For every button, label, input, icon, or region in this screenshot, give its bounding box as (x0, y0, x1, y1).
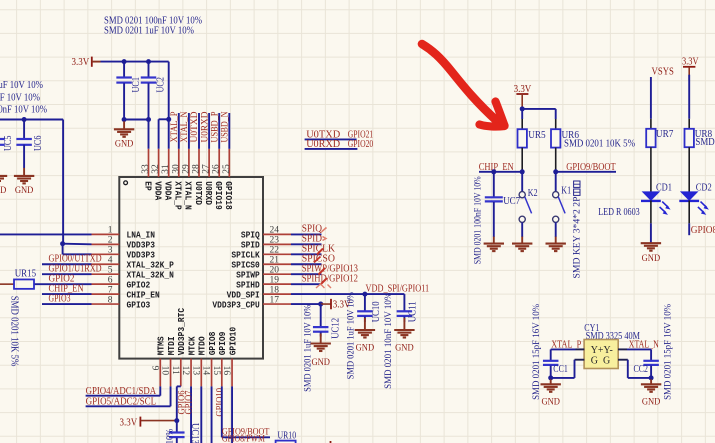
svg-text:23: 23 (270, 236, 280, 246)
svg-text:GPIO8/PWM: GPIO8/PWM (222, 433, 265, 443)
svg-text:SMD 0201 1uF 10V 10%: SMD 0201 1uF 10V 10% (104, 26, 194, 37)
svg-text:SPICS0: SPICS0 (231, 260, 259, 270)
svg-text:VDD3P3: VDD3P3 (127, 241, 155, 251)
svg-text:5: 5 (108, 265, 113, 275)
svg-text:SPIHD/GPIO12: SPIHD/GPIO12 (302, 273, 358, 284)
svg-text:30: 30 (171, 164, 181, 174)
svg-text:GPIO8: GPIO8 (691, 225, 715, 236)
svg-text:3.3V: 3.3V (333, 299, 351, 310)
svg-text:21: 21 (270, 255, 280, 265)
svg-text:VDD_SPI/GPIO11: VDD_SPI/GPIO11 (366, 283, 430, 294)
svg-text:GPIO5/ADC2/SCL: GPIO5/ADC2/SCL (86, 397, 157, 408)
svg-text:SMD 0201 10K 5%: SMD 0201 10K 5% (564, 138, 635, 149)
svg-text:MTDO: MTDO (198, 336, 208, 355)
svg-text:3: 3 (108, 246, 113, 256)
svg-text:4: 4 (108, 255, 113, 265)
svg-text:VDD_SPI: VDD_SPI (227, 290, 260, 300)
svg-text:11: 11 (170, 366, 180, 375)
svg-text:CHIP_EN: CHIP_EN (127, 290, 160, 300)
svg-text:7: 7 (108, 285, 113, 295)
svg-text:SPIQ: SPIQ (241, 231, 261, 241)
svg-text:VDD3P3_CPU: VDD3P3_CPU (212, 300, 259, 310)
svg-text:SPIHD: SPIHD (236, 280, 260, 290)
svg-text:UR7: UR7 (656, 129, 674, 140)
svg-text:26: 26 (212, 164, 222, 174)
svg-text:29: 29 (181, 164, 191, 174)
svg-text:UC1: UC1 (131, 77, 142, 93)
svg-text:SMD 0201 15pF 16V 10%: SMD 0201 15pF 16V 10% (664, 304, 674, 400)
svg-text:32: 32 (151, 164, 161, 174)
svg-text:18: 18 (270, 285, 280, 295)
svg-text:UC7: UC7 (503, 196, 520, 207)
svg-text:19: 19 (270, 275, 280, 285)
svg-text:XTAL_32K_P: XTAL_32K_P (127, 260, 174, 270)
svg-text:GPIO10: GPIO10 (228, 327, 238, 355)
svg-text:G G: G G (591, 356, 611, 367)
svg-text:XTAL_P: XTAL_P (173, 181, 183, 209)
svg-text:15: 15 (211, 366, 221, 376)
svg-text:LNA_IN: LNA_IN (127, 231, 155, 241)
svg-text:SMD 0201 100nF 10V 10%: SMD 0201 100nF 10V 10% (0, 105, 47, 116)
svg-text:24: 24 (270, 226, 280, 236)
svg-text:3.3V: 3.3V (682, 57, 699, 68)
svg-text:GPIO18: GPIO18 (223, 181, 233, 209)
svg-text:SMD 0201 1uF 10V 10%: SMD 0201 1uF 10V 10% (166, 429, 176, 443)
svg-text:SMD 0201 10nF 10V 10%: SMD 0201 10nF 10V 10% (384, 293, 394, 389)
svg-text:GND: GND (541, 396, 560, 407)
svg-text:UC2: UC2 (156, 77, 167, 93)
svg-text:UR5: UR5 (528, 130, 546, 141)
svg-text:SMD 0201 1uF 10V 10%: SMD 0201 1uF 10V 10% (0, 80, 43, 91)
svg-text:K1: K1 (561, 186, 571, 197)
svg-text:UC11: UC11 (408, 301, 419, 322)
svg-text:GND: GND (15, 185, 34, 196)
svg-text:GND: GND (115, 139, 134, 150)
svg-text:MTCK: MTCK (187, 336, 197, 356)
svg-text:GND: GND (642, 253, 661, 264)
svg-text:16: 16 (221, 366, 231, 376)
svg-text:12: 12 (180, 366, 190, 376)
svg-text:GND: GND (642, 396, 661, 407)
svg-text:USBD_N: USBD_N (220, 112, 231, 143)
svg-text:Y+Y-: Y+Y- (591, 345, 613, 356)
svg-text:14: 14 (201, 366, 211, 376)
svg-text:6: 6 (108, 275, 113, 285)
svg-text:SPICLK: SPICLK (231, 251, 260, 261)
svg-text:U0RXD: U0RXD (203, 181, 213, 205)
svg-text:CC1: CC1 (553, 364, 568, 375)
svg-text:25: 25 (222, 164, 232, 174)
svg-text:VDDA: VDDA (152, 181, 162, 201)
svg-text:MTDI: MTDI (167, 336, 177, 355)
svg-text:EP: EP (142, 181, 152, 190)
svg-text:MTMS: MTMS (157, 336, 167, 355)
svg-text:GPIO4/ADC1/SDA: GPIO4/ADC1/SDA (86, 386, 157, 397)
svg-text:31: 31 (161, 164, 171, 174)
svg-text:XTAL_32K_N: XTAL_32K_N (127, 270, 174, 280)
svg-text:GND: GND (395, 343, 414, 354)
svg-text:GPIO7: GPIO7 (183, 390, 194, 414)
svg-text:2: 2 (108, 236, 113, 246)
svg-text:VDD3P3_RTC: VDD3P3_RTC (177, 307, 187, 355)
svg-text:GPIO10: GPIO10 (215, 388, 226, 417)
svg-text:VDDA: VDDA (163, 181, 173, 201)
svg-text:GPIO3: GPIO3 (49, 293, 71, 304)
svg-text:U0TXD: U0TXD (193, 181, 203, 205)
svg-text:20: 20 (270, 265, 280, 275)
svg-text:GND: GND (311, 357, 330, 368)
svg-text:SMD 0201 1uF 10V 10%: SMD 0201 1uF 10V 10% (303, 304, 313, 391)
svg-text:33: 33 (141, 164, 151, 174)
svg-text:SMD 0201 15pF 16V 10%: SMD 0201 15pF 16V 10% (532, 304, 542, 400)
svg-text:GPIO8: GPIO8 (208, 332, 218, 356)
svg-text:GPIO2: GPIO2 (127, 280, 151, 290)
svg-text:K2: K2 (528, 188, 538, 199)
svg-text:22: 22 (270, 246, 280, 256)
svg-text:SMD 0201 10K 5%: SMD 0201 10K 5% (695, 137, 715, 148)
svg-text:VSYS: VSYS (652, 67, 675, 78)
svg-text:UC5: UC5 (3, 136, 14, 152)
svg-text:GPIO3: GPIO3 (127, 300, 151, 310)
svg-text:SMD KEY 3*4*2 2P: SMD KEY 3*4*2 2P (572, 196, 583, 279)
svg-text:GND: GND (0, 185, 6, 196)
svg-text:GND: GND (356, 343, 375, 354)
svg-text:SMD 0201 10K 5%: SMD 0201 10K 5% (9, 296, 20, 367)
svg-text:UC6: UC6 (33, 136, 44, 152)
svg-text:28: 28 (192, 164, 202, 174)
svg-text:SPIWP: SPIWP (236, 270, 260, 280)
svg-text:1: 1 (108, 226, 113, 236)
svg-text:10: 10 (160, 366, 170, 376)
svg-text:17: 17 (270, 295, 280, 305)
svg-text:XTAL_N: XTAL_N (183, 181, 193, 209)
svg-text:VDD3P3: VDD3P3 (127, 251, 155, 261)
svg-text:9: 9 (149, 366, 159, 371)
svg-text:LED R 0603: LED R 0603 (598, 207, 640, 218)
svg-text:UR15: UR15 (15, 268, 36, 279)
svg-text:3.3V: 3.3V (120, 417, 138, 428)
svg-text:SMD 0201 100nF 10V 10%: SMD 0201 100nF 10V 10% (474, 176, 484, 264)
svg-text:GPIO9: GPIO9 (218, 332, 228, 356)
svg-text:8: 8 (108, 295, 113, 305)
svg-text:SMD 0201 1uF 10V 10%: SMD 0201 1uF 10V 10% (0, 93, 40, 104)
svg-text:27: 27 (202, 164, 212, 174)
svg-text:UC10: UC10 (371, 301, 382, 322)
svg-text:CC2: CC2 (634, 364, 649, 375)
svg-text:GPIO19: GPIO19 (213, 181, 223, 209)
svg-text:UC12: UC12 (331, 318, 342, 339)
svg-text:SPID: SPID (241, 241, 260, 251)
svg-text:3.3V: 3.3V (72, 57, 90, 68)
svg-text:13: 13 (190, 366, 200, 376)
